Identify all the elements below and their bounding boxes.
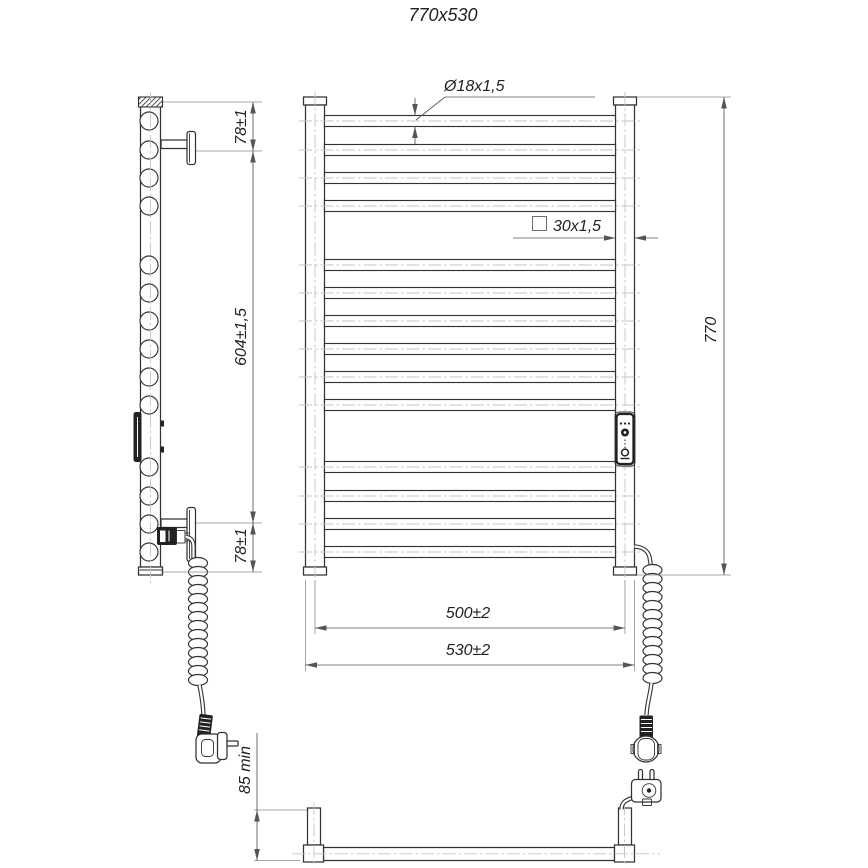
plug-body-side: [196, 733, 238, 764]
cable-coil-left: [189, 558, 208, 686]
top-bracket-offset-label: 78±1: [233, 109, 250, 144]
indicator-dot: [620, 422, 622, 424]
square-symbol: [533, 217, 547, 231]
timer-knob-icon: [622, 449, 629, 456]
plug-pin: [227, 741, 238, 746]
plug-pin: [650, 770, 654, 781]
bottom-bracket-offset-label: 78±1: [233, 528, 250, 563]
rung-tube: [299, 201, 641, 212]
wall-bracket-top: [161, 132, 196, 165]
rung-tube: [299, 260, 641, 271]
plug-front-view: [631, 716, 661, 763]
fixing-nub: [161, 421, 165, 427]
heating-unit: [158, 528, 190, 545]
bracket-spacing-label: 604±1,5: [233, 308, 250, 366]
rung-tube: [299, 288, 641, 299]
dim-square-tube: 30x1,5: [513, 217, 658, 239]
wall-stub-right: [619, 808, 632, 845]
dim-tube-diameter: Ø18x1,5: [415, 78, 595, 144]
rung-tube: [299, 547, 641, 558]
bottom-view: [292, 770, 661, 868]
front-view: [299, 92, 662, 762]
dim-min-clearance: 85 min: [237, 733, 307, 861]
min-clearance-label: 85 min: [237, 746, 254, 794]
rung-tube: [299, 173, 641, 184]
indicator-dot: [624, 422, 626, 424]
overall-height-label: 770: [703, 317, 720, 344]
rung-tube: [299, 344, 641, 355]
mounting-width-label: 500±2: [446, 605, 490, 622]
rung-tube: [299, 116, 641, 127]
rung-tube: [299, 316, 641, 327]
dim-bracket-chain: 78±1 604±1,5 78±1: [163, 102, 262, 572]
plug-top-view: [622, 770, 662, 810]
cable-coil-right: [643, 565, 662, 684]
rung-tube: [299, 462, 641, 473]
rung-tube: [299, 145, 641, 156]
rung-tube: [299, 519, 641, 530]
square-tube-label: 30x1,5: [553, 218, 601, 235]
fixing-nub: [161, 447, 165, 453]
dim-widths: 500±2 530±2: [306, 580, 635, 671]
indicator-dot: [628, 422, 630, 424]
controller-panel: [615, 412, 635, 466]
power-cable-right: [635, 547, 663, 716]
side-view: [134, 92, 239, 763]
tube-diameter-label: Ø18x1,5: [443, 78, 505, 95]
technical-drawing: 770x530: [0, 0, 868, 868]
rung-tube: [299, 400, 641, 411]
plug-pin: [639, 770, 643, 781]
drawing-canvas: 770x530: [0, 0, 868, 868]
rungs: [299, 116, 641, 558]
drawing-title: 770x530: [408, 5, 477, 25]
rung-tube: [299, 491, 641, 502]
overall-width-label: 530±2: [446, 642, 490, 659]
dim-overall-height: 770: [637, 97, 731, 575]
rung-tube: [299, 372, 641, 383]
